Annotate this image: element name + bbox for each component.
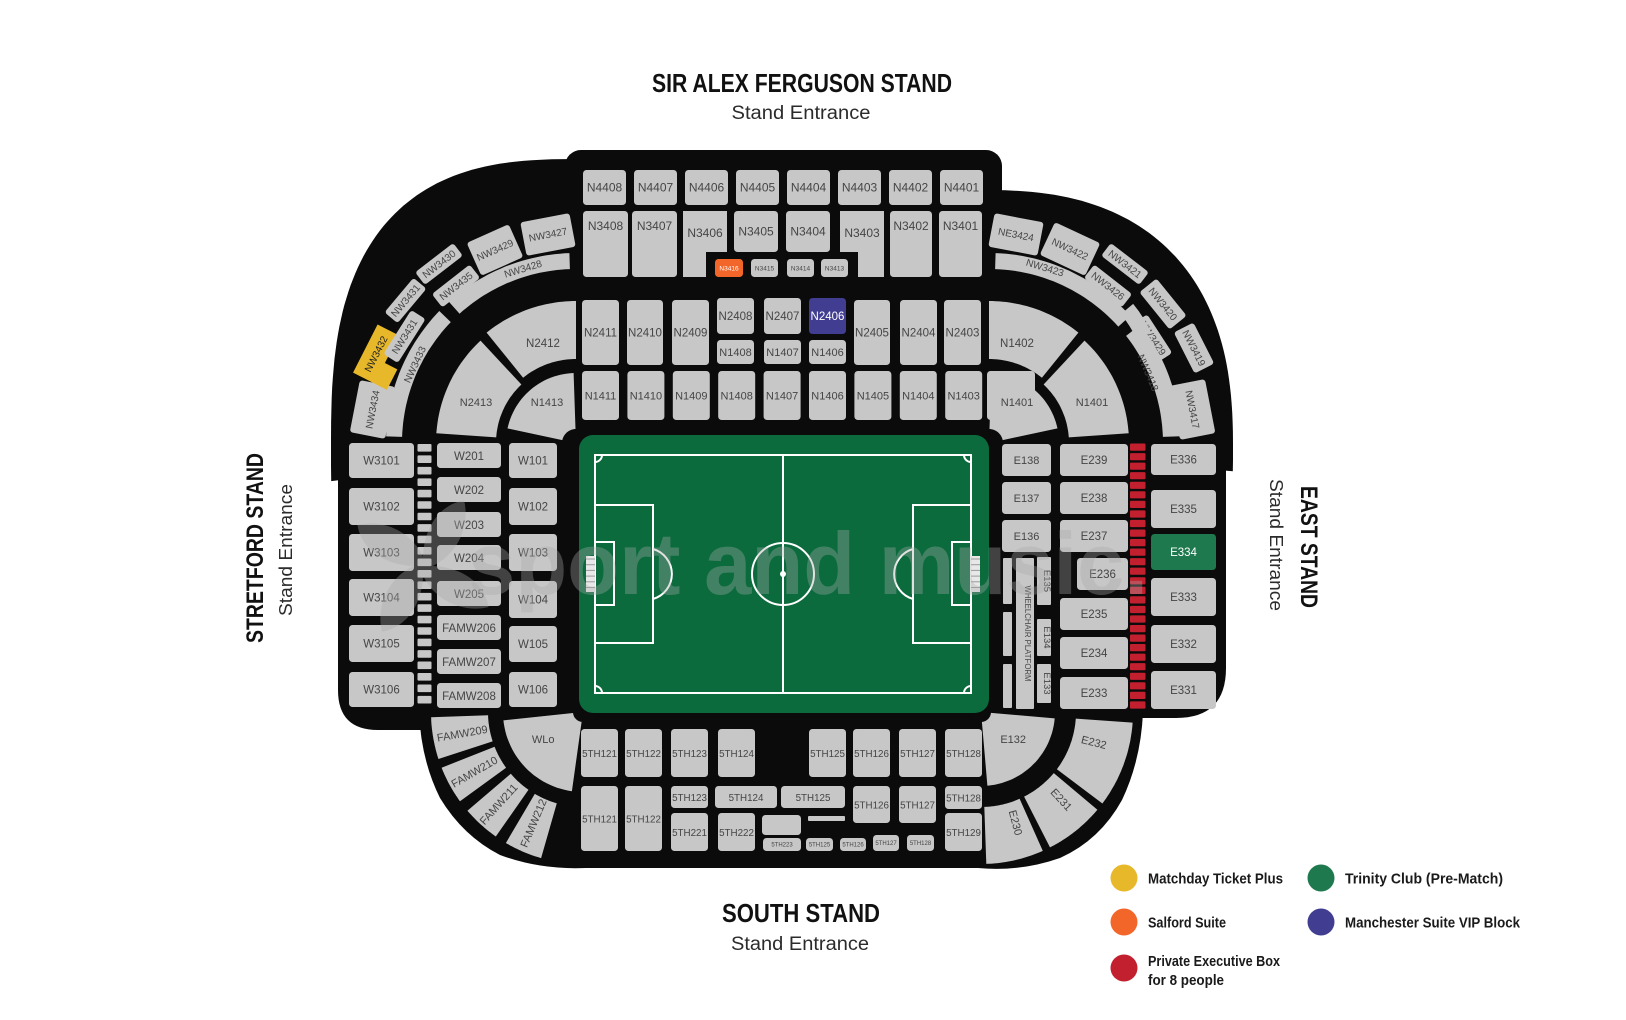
svg-text:5TH124: 5TH124 <box>719 749 754 760</box>
svg-text:5TH129: 5TH129 <box>946 828 981 839</box>
svg-text:N3413: N3413 <box>825 266 845 273</box>
svg-text:N4401: N4401 <box>944 181 980 195</box>
svg-text:N1403: N1403 <box>947 391 979 403</box>
svg-text:N3402: N3402 <box>893 219 929 233</box>
svg-text:N2411: N2411 <box>584 328 617 340</box>
svg-text:N1411: N1411 <box>585 391 617 403</box>
svg-text:SOUTH STAND: SOUTH STAND <box>722 898 880 928</box>
svg-text:5TH127: 5TH127 <box>900 801 935 812</box>
svg-text:N4404: N4404 <box>791 181 827 195</box>
svg-text:N1406: N1406 <box>811 347 843 359</box>
svg-text:N2405: N2405 <box>855 328 889 340</box>
svg-text:5TH127: 5TH127 <box>900 749 935 760</box>
svg-text:W3101: W3101 <box>363 456 399 468</box>
svg-text:Salford Suite: Salford Suite <box>1148 915 1226 932</box>
svg-text:5TH123: 5TH123 <box>672 793 707 804</box>
svg-text:5TH121: 5TH121 <box>582 749 617 760</box>
svg-text:N3416: N3416 <box>719 266 739 273</box>
svg-text:FAMW207: FAMW207 <box>442 657 496 669</box>
svg-text:W202: W202 <box>454 485 484 497</box>
svg-text:WLo: WLo <box>532 734 555 746</box>
svg-text:N4407: N4407 <box>638 181 674 195</box>
svg-text:5TH127: 5TH127 <box>875 841 897 847</box>
svg-text:N1404: N1404 <box>902 391 934 403</box>
svg-text:Stand Entrance: Stand Entrance <box>1266 479 1287 611</box>
svg-text:E331: E331 <box>1170 685 1197 697</box>
svg-text:sport and music.: sport and music. <box>468 514 1148 613</box>
svg-text:N3405: N3405 <box>738 225 774 239</box>
svg-text:N2409: N2409 <box>674 328 708 340</box>
svg-text:E238: E238 <box>1081 493 1108 505</box>
svg-text:N1410: N1410 <box>630 391 662 403</box>
svg-text:5TH128: 5TH128 <box>946 749 981 760</box>
svg-text:5TH126: 5TH126 <box>842 843 864 849</box>
svg-text:5TH122: 5TH122 <box>626 815 661 826</box>
svg-text:E138: E138 <box>1014 455 1040 467</box>
svg-text:W3105: W3105 <box>363 639 399 651</box>
svg-text:Stand Entrance: Stand Entrance <box>731 934 869 955</box>
svg-text:for 8 people: for 8 people <box>1148 972 1224 989</box>
svg-text:N1407: N1407 <box>766 347 798 359</box>
svg-text:N1408: N1408 <box>720 391 752 403</box>
svg-text:W3102: W3102 <box>363 502 399 514</box>
svg-text:W105: W105 <box>518 639 548 651</box>
svg-text:N2406: N2406 <box>811 311 845 323</box>
svg-text:5TH128: 5TH128 <box>910 841 932 847</box>
svg-text:STRETFORD STAND: STRETFORD STAND <box>242 453 269 643</box>
svg-text:N3415: N3415 <box>755 266 775 273</box>
svg-text:E133: E133 <box>1041 672 1052 694</box>
svg-text:N3401: N3401 <box>943 219 979 233</box>
svg-text:N1402: N1402 <box>1000 338 1034 350</box>
svg-text:N3408: N3408 <box>588 219 624 233</box>
svg-text:EAST STAND: EAST STAND <box>1295 486 1322 608</box>
svg-text:N4402: N4402 <box>893 181 929 195</box>
svg-text:N4403: N4403 <box>842 181 878 195</box>
svg-text:N3414: N3414 <box>791 266 811 273</box>
svg-text:W106: W106 <box>518 685 548 697</box>
svg-text:E239: E239 <box>1081 455 1108 467</box>
svg-text:Private Executive Box: Private Executive Box <box>1148 953 1281 970</box>
svg-text:W3106: W3106 <box>363 685 399 697</box>
svg-text:Stand Entrance: Stand Entrance <box>732 103 871 124</box>
svg-text:N2407: N2407 <box>766 311 800 323</box>
svg-text:N2412: N2412 <box>526 338 560 350</box>
svg-text:E332: E332 <box>1170 639 1197 651</box>
svg-text:5TH123: 5TH123 <box>672 749 707 760</box>
svg-text:E137: E137 <box>1014 493 1040 505</box>
svg-text:E334: E334 <box>1170 547 1197 559</box>
svg-text:N2404: N2404 <box>902 328 936 340</box>
svg-text:Matchday Ticket Plus: Matchday Ticket Plus <box>1148 871 1283 888</box>
svg-text:N1408: N1408 <box>719 347 751 359</box>
svg-text:5TH126: 5TH126 <box>854 749 889 760</box>
svg-text:E336: E336 <box>1170 455 1197 467</box>
svg-text:5TH124: 5TH124 <box>729 793 764 804</box>
svg-text:N1413: N1413 <box>531 397 563 409</box>
svg-text:N2408: N2408 <box>719 311 753 323</box>
svg-text:E132: E132 <box>1000 734 1026 746</box>
svg-text:Manchester Suite VIP Block: Manchester Suite VIP Block <box>1345 915 1521 932</box>
svg-text:N1405: N1405 <box>857 391 889 403</box>
svg-text:W201: W201 <box>454 451 484 463</box>
svg-text:N1401: N1401 <box>1001 397 1033 409</box>
svg-text:N1407: N1407 <box>766 391 798 403</box>
svg-text:5TH128: 5TH128 <box>946 794 981 805</box>
svg-text:E134: E134 <box>1041 626 1052 648</box>
svg-text:W102: W102 <box>518 502 548 514</box>
svg-text:5TH122: 5TH122 <box>626 749 661 760</box>
svg-text:Trinity Club (Pre-Match): Trinity Club (Pre-Match) <box>1345 871 1503 888</box>
svg-text:5TH223: 5TH223 <box>771 843 793 849</box>
svg-text:N2403: N2403 <box>946 328 980 340</box>
svg-text:N3403: N3403 <box>844 226 880 240</box>
svg-text:FAMW208: FAMW208 <box>442 691 496 703</box>
svg-text:N1409: N1409 <box>675 391 707 403</box>
svg-text:N2413: N2413 <box>460 397 492 409</box>
svg-text:N4405: N4405 <box>740 181 776 195</box>
svg-text:SIR ALEX FERGUSON STAND: SIR ALEX FERGUSON STAND <box>652 68 952 98</box>
svg-text:5TH125: 5TH125 <box>810 749 845 760</box>
svg-text:5TH125: 5TH125 <box>809 843 831 849</box>
svg-text:E333: E333 <box>1170 592 1197 604</box>
svg-text:5TH126: 5TH126 <box>854 801 889 812</box>
svg-text:N3407: N3407 <box>637 219 673 233</box>
svg-text:5TH121: 5TH121 <box>582 815 617 826</box>
svg-text:5TH221: 5TH221 <box>672 828 707 839</box>
svg-text:W101: W101 <box>518 456 548 468</box>
svg-text:5TH125: 5TH125 <box>796 793 831 804</box>
svg-text:FAMW206: FAMW206 <box>442 623 496 635</box>
svg-text:N3404: N3404 <box>790 225 826 239</box>
svg-text:N3406: N3406 <box>687 226 723 240</box>
svg-text:Stand Entrance: Stand Entrance <box>275 484 296 616</box>
svg-text:N1406: N1406 <box>811 391 843 403</box>
svg-text:N1401: N1401 <box>1076 397 1108 409</box>
svg-text:N4408: N4408 <box>587 181 623 195</box>
svg-text:N4406: N4406 <box>689 181 725 195</box>
svg-text:N2410: N2410 <box>628 328 662 340</box>
svg-text:5TH222: 5TH222 <box>719 828 754 839</box>
svg-text:E233: E233 <box>1081 688 1108 700</box>
svg-text:E335: E335 <box>1170 504 1197 516</box>
svg-text:E234: E234 <box>1081 648 1108 660</box>
